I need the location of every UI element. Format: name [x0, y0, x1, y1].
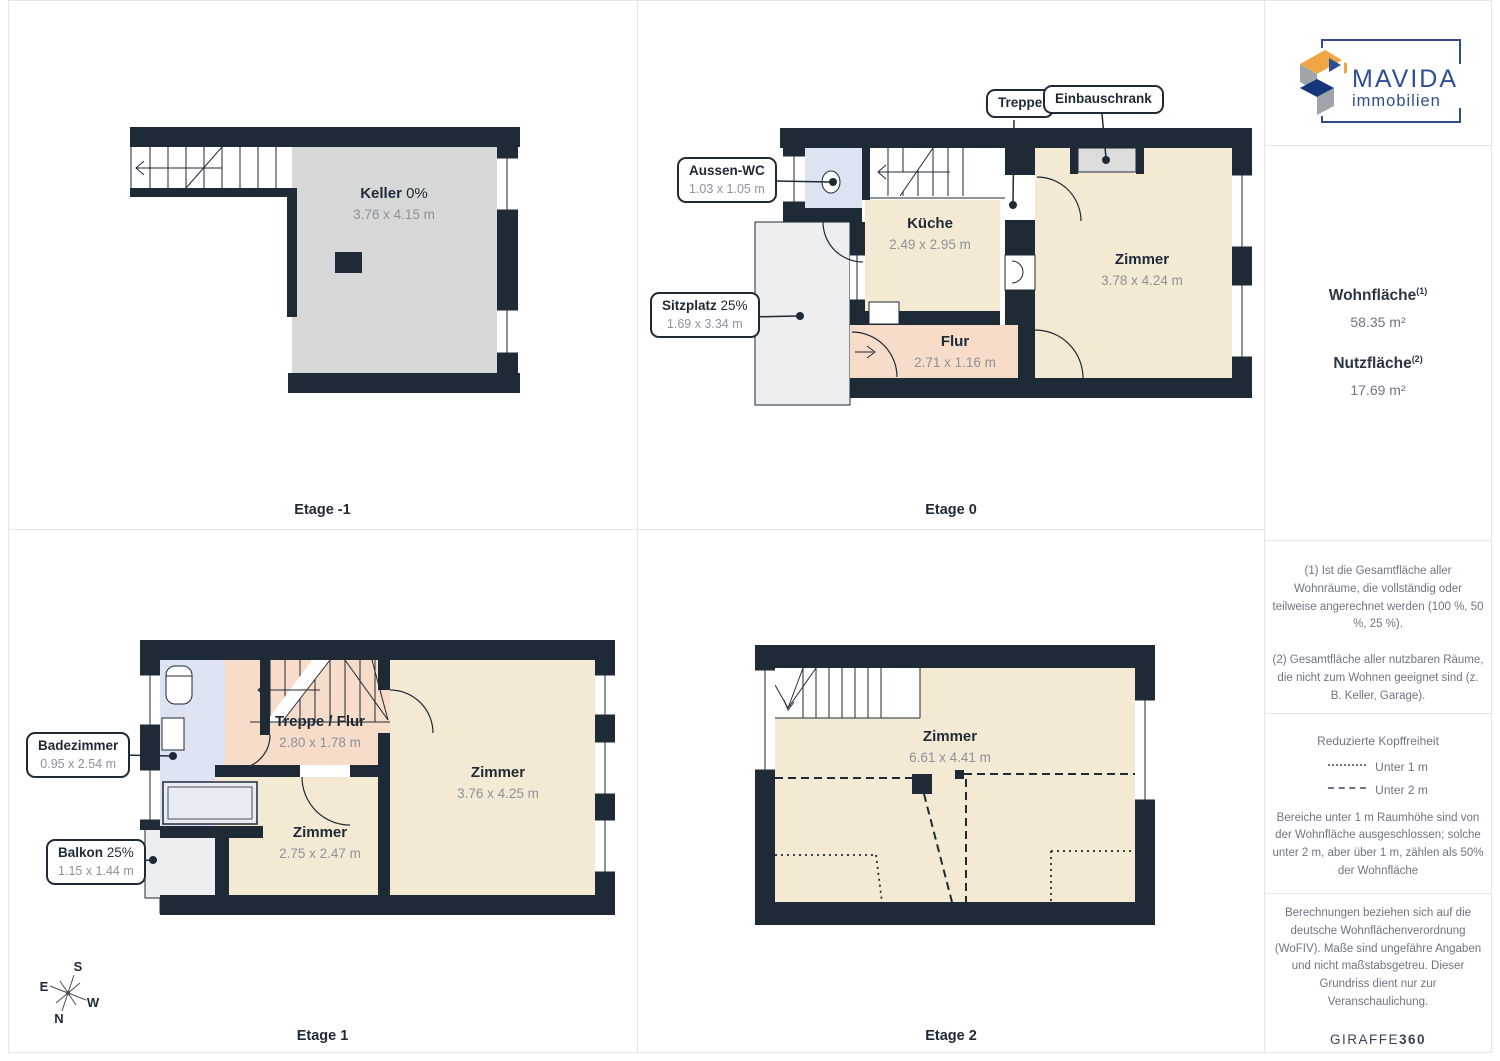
- callout-sitzplatz: Sitzplatz 25% 1.69 x 3.34 m: [650, 292, 760, 338]
- area-summary: Wohnfläche(1) 58.35 m² Nutzfläche(2) 17.…: [1272, 286, 1484, 398]
- floor-label-etage-0: Etage 0: [637, 502, 1265, 518]
- stair-area: [775, 668, 920, 718]
- compass-n: N: [54, 1011, 63, 1026]
- toilet-icon: [166, 666, 192, 704]
- brand-name: MAVIDA: [1352, 65, 1458, 93]
- callout-einbauschrank: Einbauschrank: [1043, 85, 1164, 114]
- brand-sub: immobilien: [1352, 92, 1441, 110]
- brand-logo-icon: MAVIDA immobilien: [1292, 30, 1472, 130]
- headroom-title: Reduzierte Kopffreiheit: [1272, 732, 1484, 751]
- sidebar-divider-4: [1264, 893, 1492, 894]
- room-label-zimmer-e2: Zimmer 6.61 x 4.41 m: [850, 726, 1050, 767]
- callout-balkon: Balkon 25% 1.15 x 1.44 m: [46, 839, 146, 885]
- floor-label-etage-minus-1: Etage -1: [8, 502, 637, 518]
- bathtub-icon: [163, 782, 257, 824]
- floor-label-etage-2: Etage 2: [637, 1028, 1265, 1044]
- room-label-zimmer-big: Zimmer 3.76 x 4.25 m: [398, 762, 598, 803]
- divider-horizontal: [8, 529, 1265, 530]
- floorplan-etage-2: [740, 630, 1180, 940]
- niche: [1005, 255, 1035, 290]
- nutzflaeche-title: Nutzfläche(2): [1272, 354, 1484, 373]
- legend-under-2m: Unter 2 m: [1272, 783, 1484, 797]
- floorplan-etage-minus-1: [100, 110, 560, 410]
- dashed-line-icon: [1328, 787, 1366, 789]
- room-label-treppe-flur: Treppe / Flur 2.80 x 1.78 m: [220, 711, 420, 752]
- room-dims: 3.76 x 4.15 m: [294, 205, 494, 225]
- sink-icon: [162, 718, 184, 750]
- sidebar-divider-3: [1264, 713, 1492, 714]
- disclaimer: Berechnungen beziehen sich auf die deuts…: [1272, 905, 1484, 1012]
- compass-e: E: [40, 979, 49, 994]
- headroom-legend: Reduzierte Kopffreiheit Unter 1 m Unter …: [1272, 732, 1484, 881]
- footnote-1: (1) Ist die Gesamtfläche aller Wohnräume…: [1272, 563, 1484, 634]
- keller-room: [292, 147, 497, 373]
- giraffe360-logo: GIRAFFE360: [1272, 1032, 1484, 1047]
- post: [955, 770, 964, 779]
- callout-aussen-wc: Aussen-WC 1.03 x 1.05 m: [677, 157, 777, 203]
- legend-under-1m: Unter 1 m: [1272, 760, 1484, 774]
- room-label-zimmer: Zimmer 3.78 x 4.24 m: [1042, 249, 1242, 290]
- wohnflaeche-title: Wohnfläche(1): [1272, 286, 1484, 305]
- callout-badezimmer: Badezimmer 0.95 x 2.54 m: [26, 732, 130, 778]
- stair-room: [870, 148, 1005, 200]
- room-name: Keller 0%: [294, 183, 494, 205]
- compass-s: S: [74, 959, 83, 974]
- headroom-note: Bereiche unter 1 m Raumhöhe sind von der…: [1272, 810, 1484, 881]
- chimney: [912, 774, 932, 794]
- compass-icon: S E W N: [28, 945, 138, 1045]
- footnotes: (1) Ist die Gesamtfläche aller Wohnräume…: [1272, 563, 1484, 706]
- disclaimer-block: Berechnungen beziehen sich auf die deuts…: [1272, 905, 1484, 1047]
- room-label-kueche: Küche 2.49 x 2.95 m: [830, 213, 1030, 254]
- room-label-keller: Keller 0% 3.76 x 4.15 m: [294, 183, 494, 224]
- floorplan-sheet: { "brand": { "name": "MAVIDA", "sub": "i…: [0, 0, 1500, 1061]
- dotted-line-icon: [1328, 764, 1366, 766]
- footnote-2: (2) Gesamtfläche aller nutzbaren Räume, …: [1272, 652, 1484, 705]
- stairs-icon: [131, 147, 276, 188]
- wohnflaeche-value: 58.35 m²: [1272, 314, 1484, 330]
- sidebar-divider-1: [1264, 145, 1492, 146]
- compass-w: W: [87, 995, 100, 1010]
- sidebar-divider-2: [1264, 540, 1492, 541]
- room-label-flur: Flur 2.71 x 1.16 m: [855, 331, 1055, 372]
- nutzflaeche-value: 17.69 m²: [1272, 382, 1484, 398]
- room-label-zimmer-small: Zimmer 2.75 x 2.47 m: [220, 822, 420, 863]
- kitchen-fixture-icon: [869, 302, 899, 324]
